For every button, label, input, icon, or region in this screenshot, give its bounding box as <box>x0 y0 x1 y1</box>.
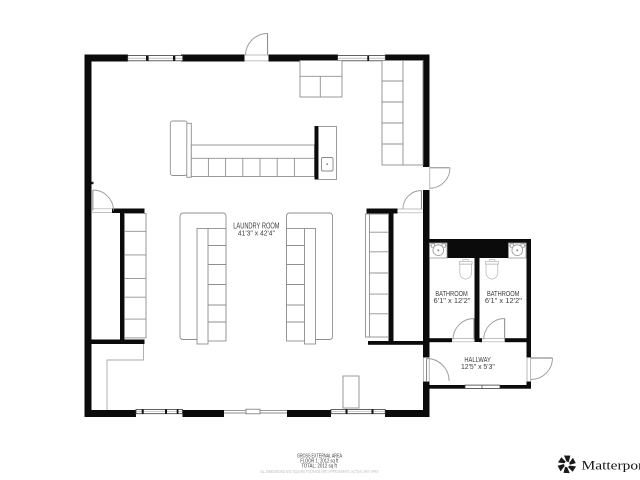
svg-text:41'3" x 42'4": 41'3" x 42'4" <box>238 231 276 238</box>
svg-text:6'1" x 12'2": 6'1" x 12'2" <box>434 298 472 305</box>
svg-text:12'5" x 5'3": 12'5" x 5'3" <box>461 364 495 371</box>
svg-text:Matterport: Matterport <box>582 458 640 472</box>
svg-text:ALL DIMENSIONS AND SQUARE FOOT: ALL DIMENSIONS AND SQUARE FOOTAGE ARE AP… <box>260 469 379 474</box>
svg-text:6'1" x 12'2": 6'1" x 12'2" <box>485 298 523 305</box>
svg-text:LAUNDRY ROOM: LAUNDRY ROOM <box>233 222 279 231</box>
